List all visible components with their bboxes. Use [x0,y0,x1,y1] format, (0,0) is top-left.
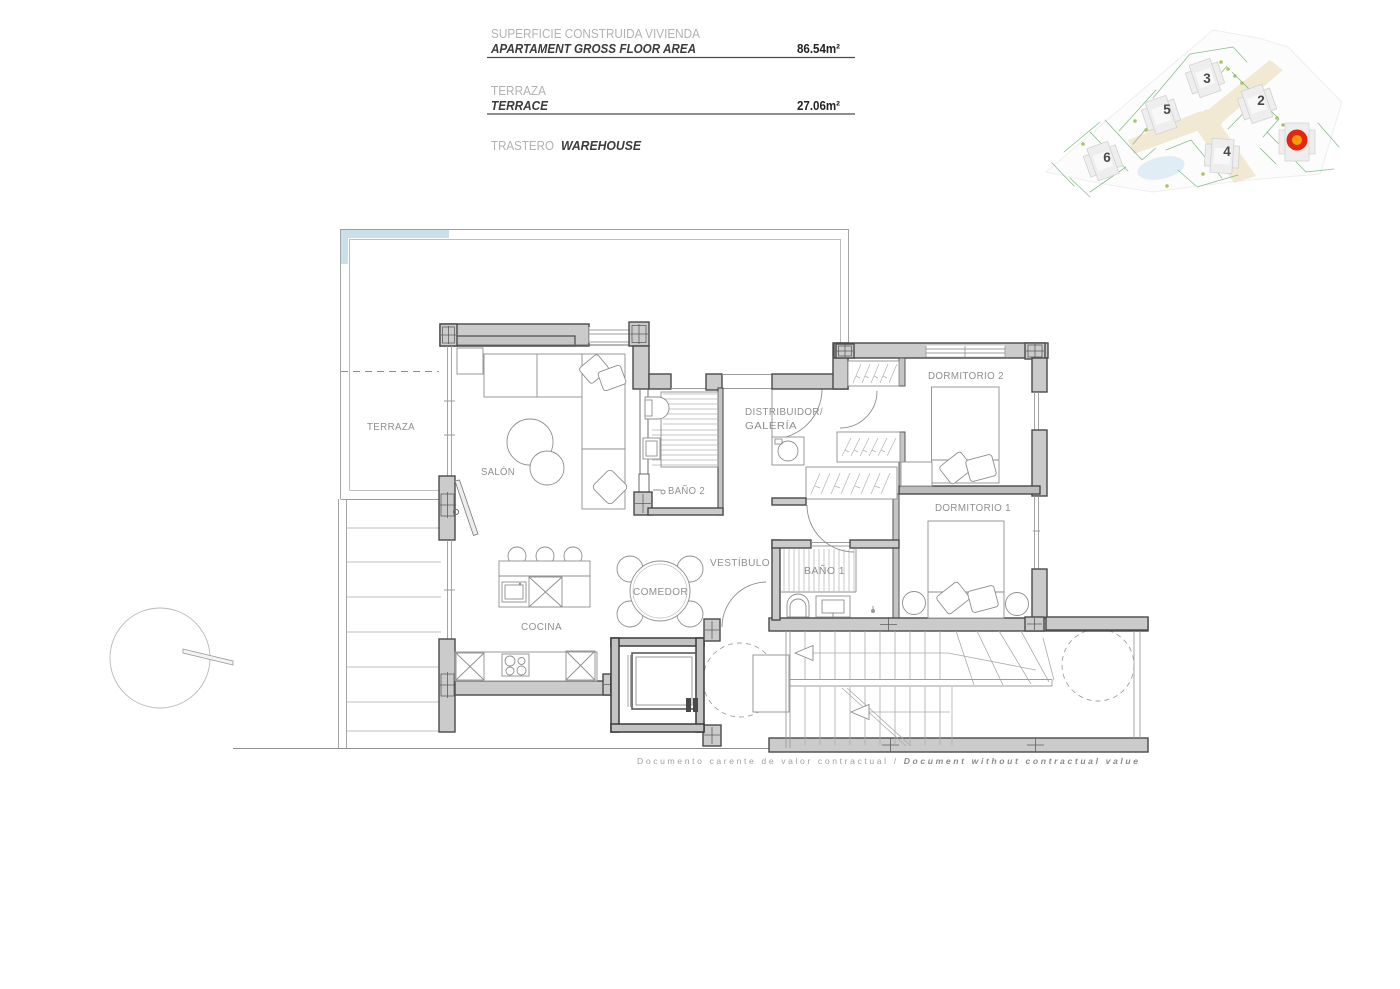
svg-text:COMEDOR: COMEDOR [633,586,688,598]
svg-text:Documento carente de valor con: Documento carente de valor contractual /… [637,756,1140,766]
svg-text:BAÑO 2: BAÑO 2 [668,484,705,497]
svg-text:TERRAZA: TERRAZA [491,83,546,98]
svg-text:SUPERFICIE CONSTRUIDA VIVIENDA: SUPERFICIE CONSTRUIDA VIVIENDA [491,26,700,41]
svg-text:TRASTERO: TRASTERO [491,138,554,153]
svg-text:5: 5 [1163,102,1171,117]
svg-text:2: 2 [1257,93,1265,108]
svg-text:COCINA: COCINA [521,621,562,633]
svg-text:GALERÍA: GALERÍA [745,419,797,432]
svg-text:86.54m²: 86.54m² [797,41,841,56]
svg-text:DORMITORIO 2: DORMITORIO 2 [928,370,1004,382]
svg-text:6: 6 [1103,150,1111,165]
svg-text:3: 3 [1203,71,1211,86]
svg-text:APARTAMENT GROSS FLOOR AREA: APARTAMENT GROSS FLOOR AREA [490,41,696,56]
svg-text:WAREHOUSE: WAREHOUSE [561,138,642,153]
svg-text:BAÑO 1: BAÑO 1 [804,564,845,577]
svg-text:SALÓN: SALÓN [481,465,515,478]
svg-text:TERRAZA: TERRAZA [367,421,415,433]
svg-text:DISTRIBUIDOR/: DISTRIBUIDOR/ [745,406,823,418]
svg-text:DORMITORIO 1: DORMITORIO 1 [935,502,1011,514]
svg-text:27.06m²: 27.06m² [797,98,841,113]
svg-text:VESTÍBULO: VESTÍBULO [710,556,770,569]
svg-text:TERRACE: TERRACE [491,98,549,113]
svg-text:4: 4 [1223,144,1231,159]
